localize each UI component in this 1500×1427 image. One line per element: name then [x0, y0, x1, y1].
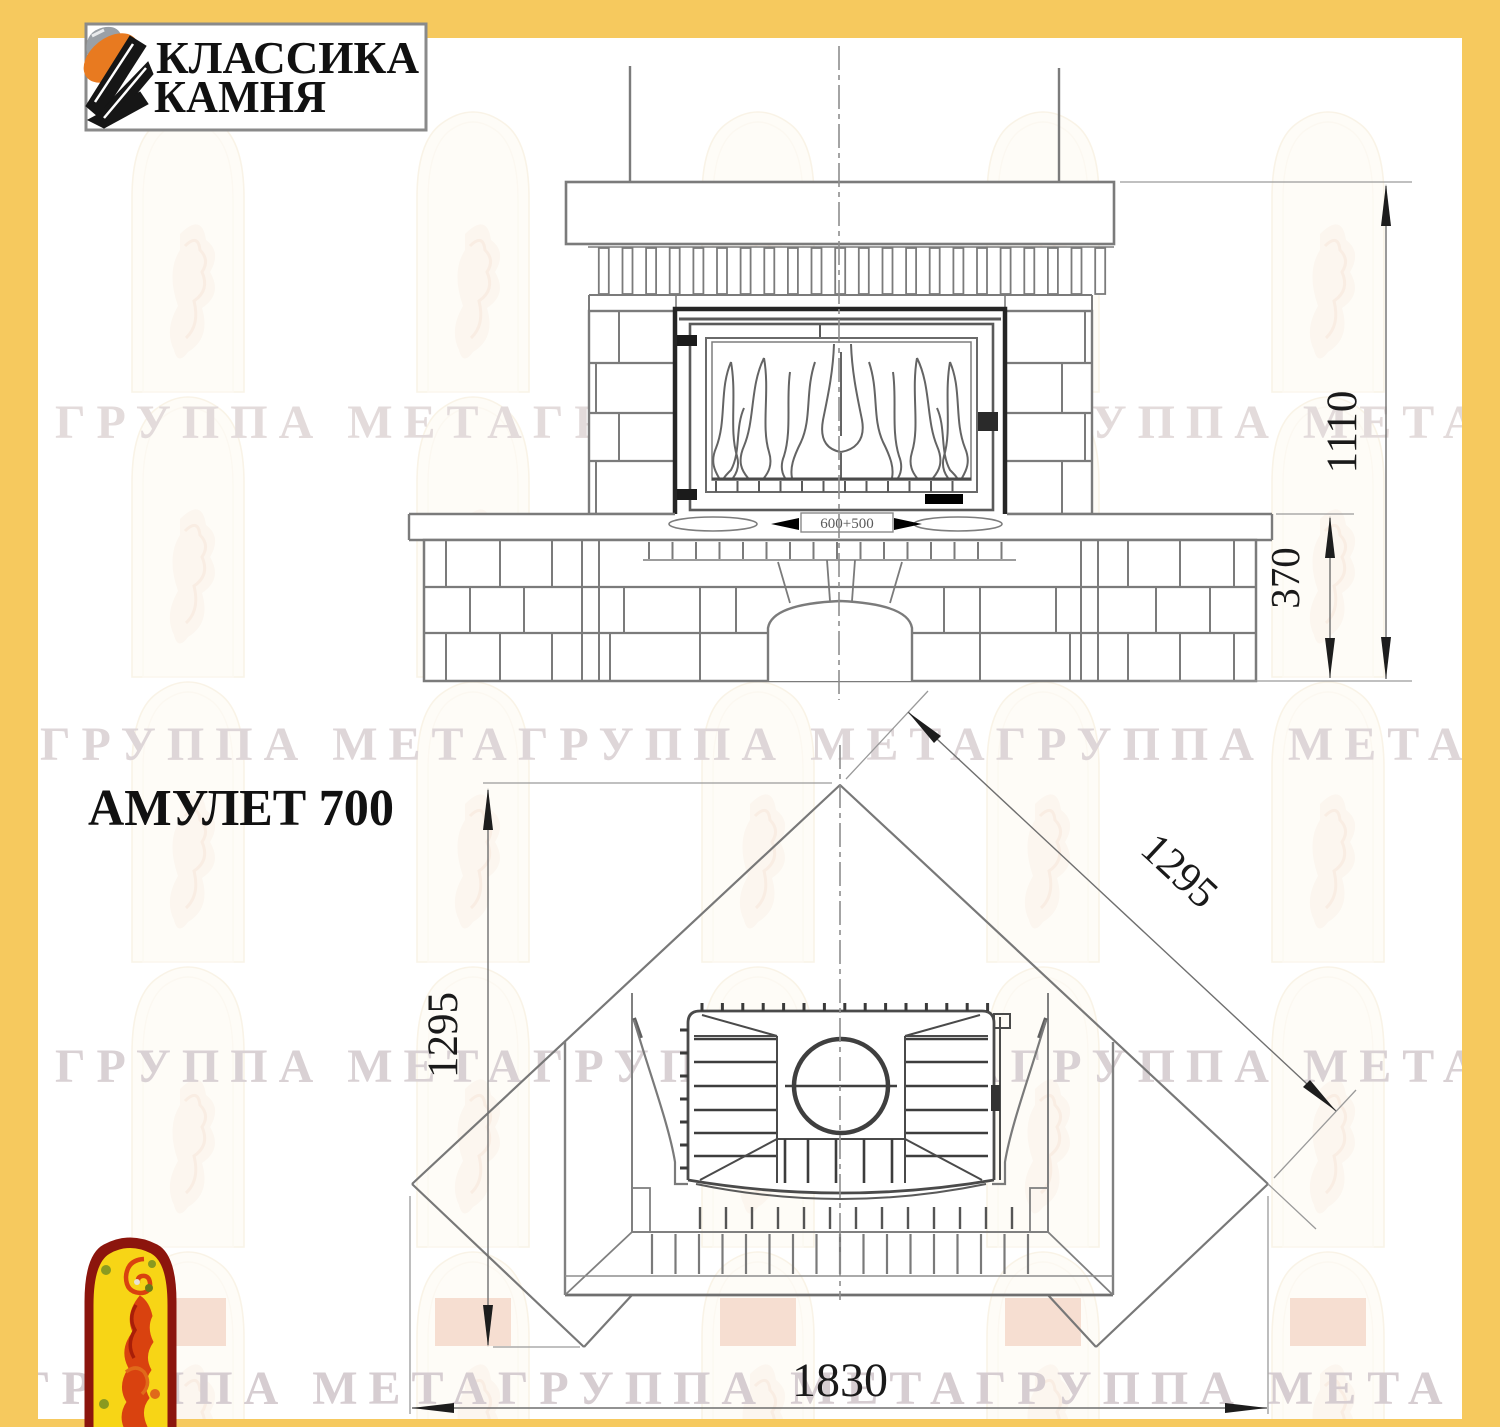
svg-text:ГРУППА МЕТАГРУППА МЕТАГРУППА М: ГРУППА МЕТАГРУППА МЕТАГРУППА МЕТА — [40, 718, 1474, 771]
svg-text:1295: 1295 — [420, 992, 467, 1078]
svg-text:370: 370 — [1262, 547, 1308, 609]
svg-text:600+500: 600+500 — [820, 516, 873, 532]
svg-text:1830: 1830 — [792, 1354, 888, 1407]
svg-text:1110: 1110 — [1319, 391, 1366, 474]
svg-text:КАМНЯ: КАМНЯ — [154, 71, 326, 122]
svg-text:АМУЛЕТ 700: АМУЛЕТ 700 — [88, 780, 394, 837]
